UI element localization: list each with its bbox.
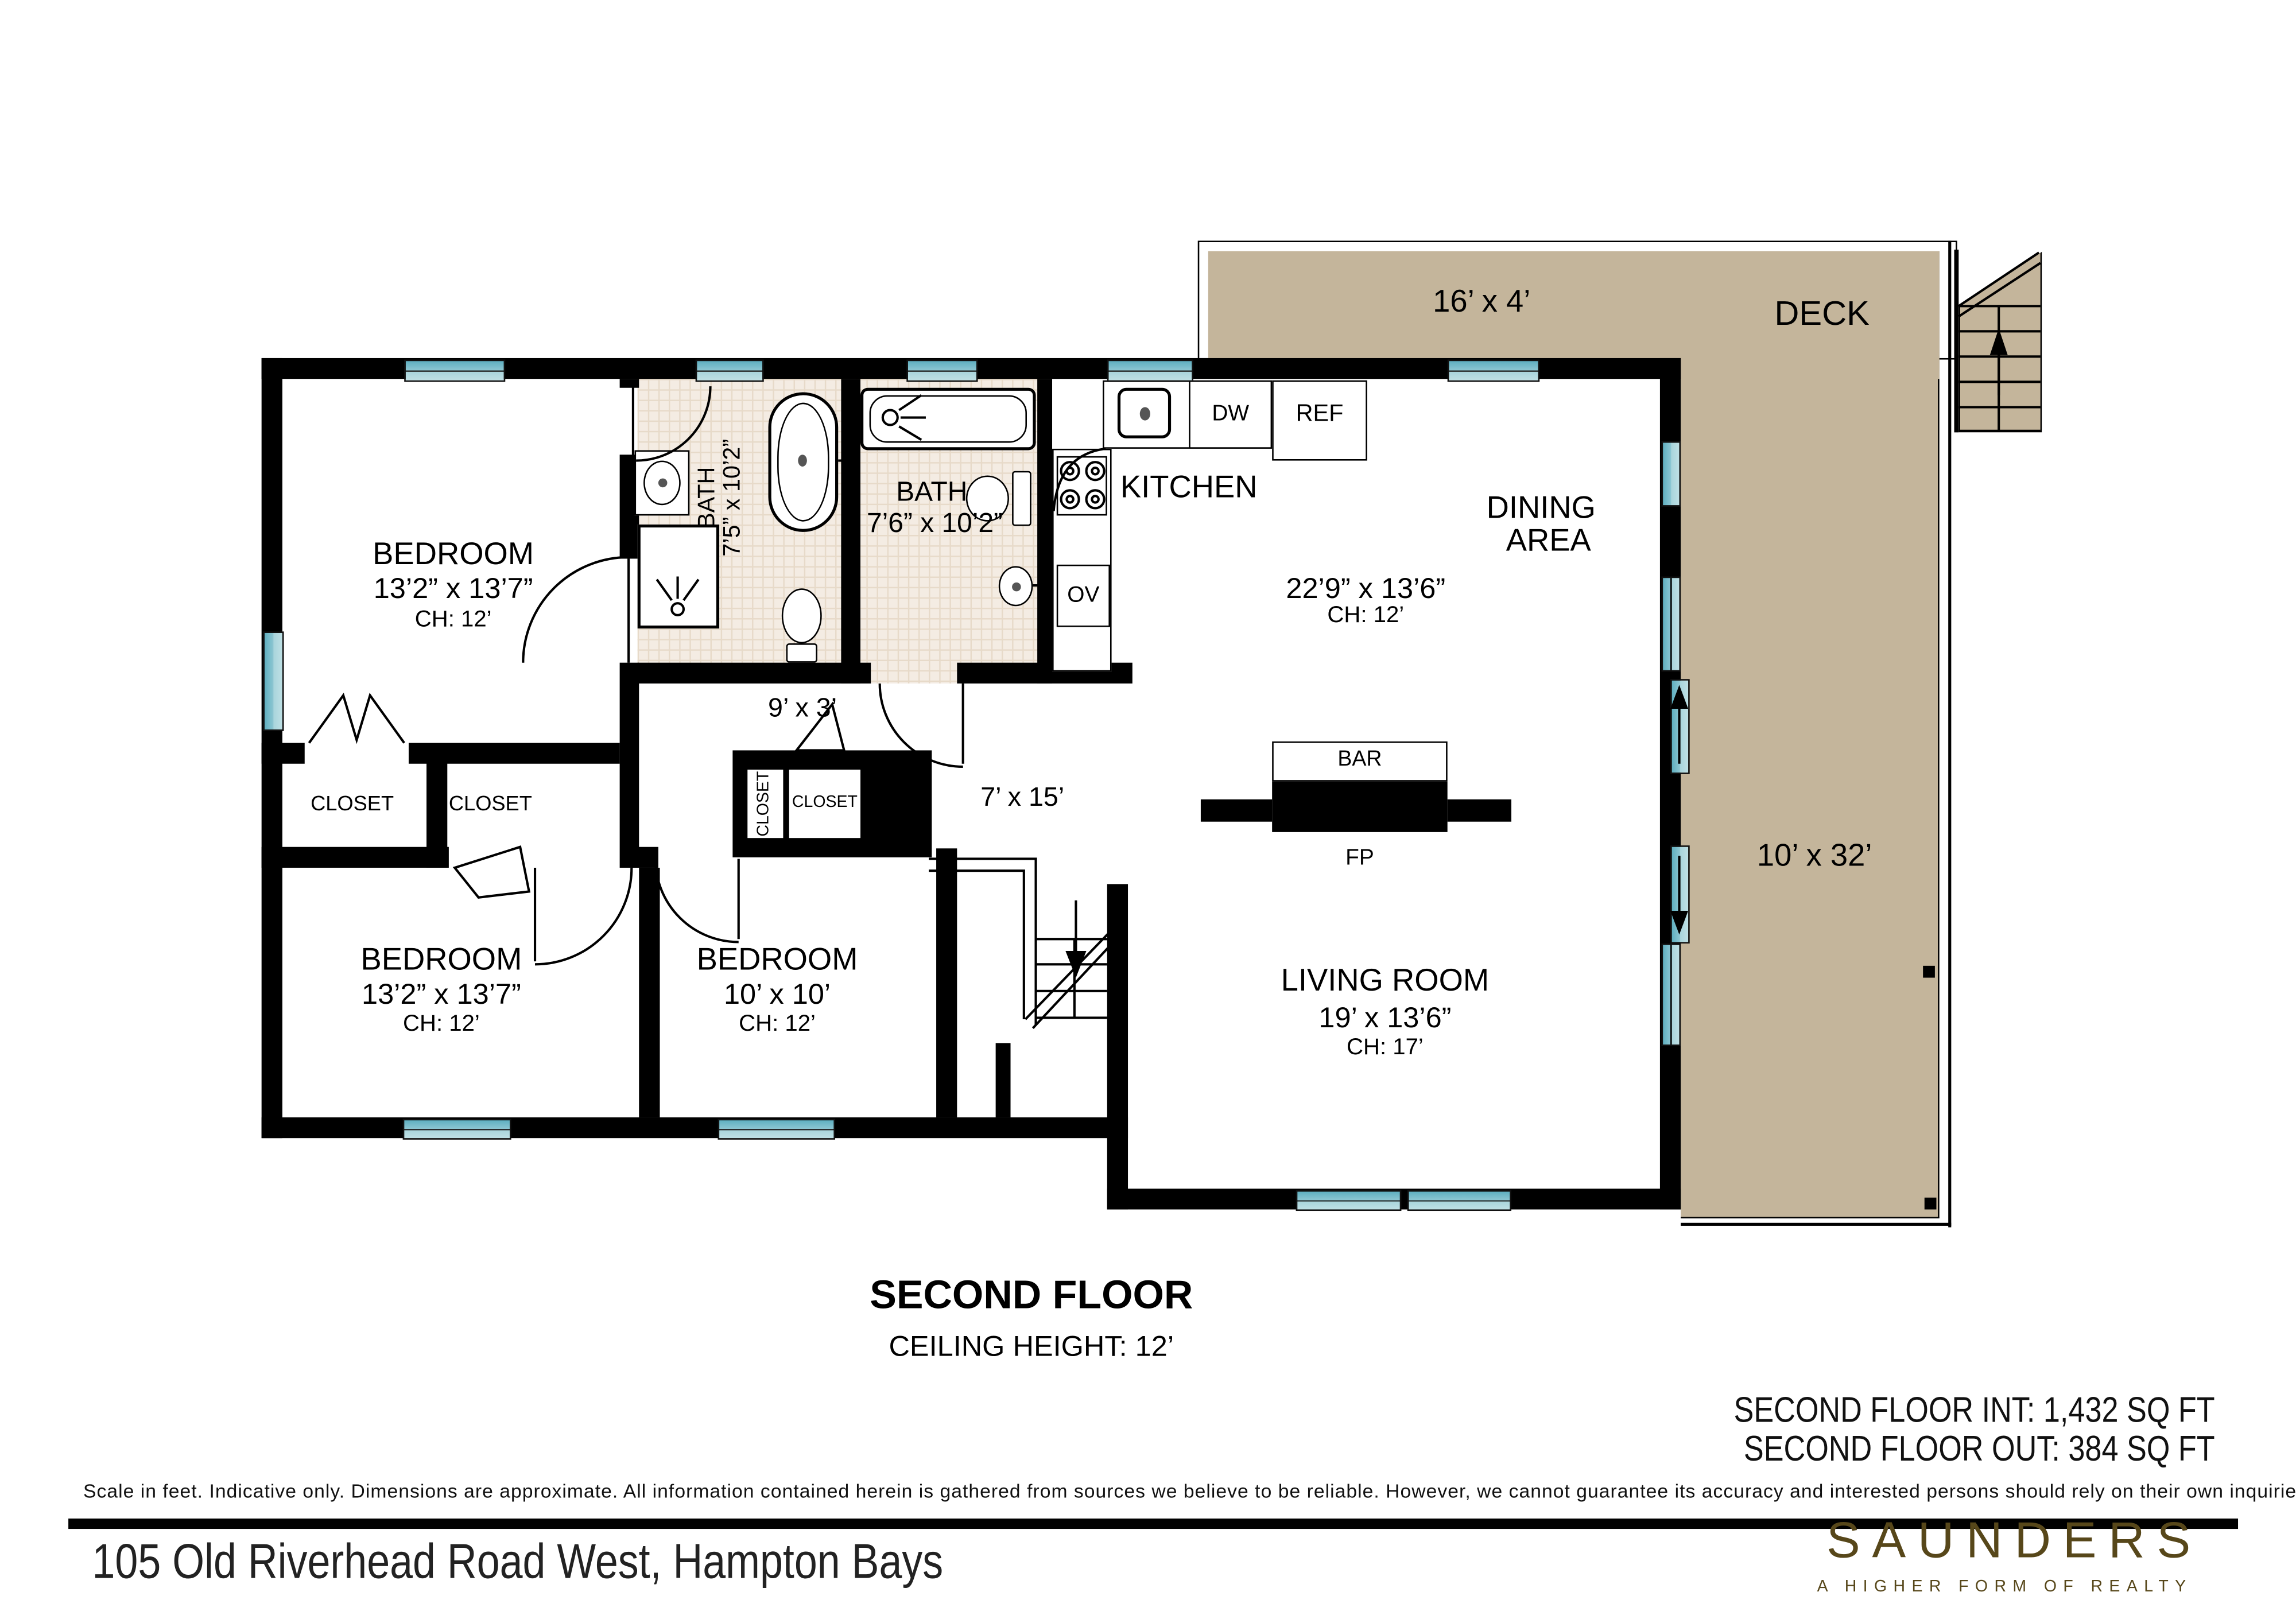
bedroom1-right-wall-a bbox=[620, 379, 639, 388]
bath1-label: BATH 7’5” x 10’2” bbox=[695, 439, 746, 557]
brand-tagline: A HIGHER FORM OF REALTY bbox=[1817, 1578, 2193, 1596]
deck-stairs bbox=[1958, 248, 2042, 432]
sliding-door bbox=[1662, 943, 1681, 1046]
stairs-down-arrow bbox=[1065, 951, 1086, 978]
stair-wall-stub bbox=[996, 1043, 1011, 1117]
bedroom1-right-wall-c bbox=[620, 663, 639, 868]
hall-top-wall-a bbox=[638, 663, 871, 684]
stair-break-line bbox=[1033, 936, 1119, 1028]
bath2-toilet-tank bbox=[1012, 471, 1031, 526]
deck-post bbox=[1923, 966, 1935, 978]
kitchen-label: KITCHEN bbox=[1120, 472, 1258, 506]
stove-box bbox=[1057, 456, 1107, 516]
plan-ceiling-height: CEILING HEIGHT: 12’ bbox=[889, 1332, 1174, 1363]
deck-side bbox=[1681, 251, 1939, 1218]
bedroom3-name: BEDROOM bbox=[697, 945, 858, 979]
dining-dims: 22’9” x 13’6” bbox=[1286, 574, 1445, 605]
deck-side-dims: 10’ x 32’ bbox=[1757, 841, 1872, 875]
bath1-toilet-tank bbox=[786, 643, 817, 663]
oven-label: OV bbox=[1067, 584, 1099, 608]
closet2-label: CLOSET bbox=[449, 793, 532, 815]
window bbox=[404, 360, 505, 382]
bath2-tub-inner bbox=[870, 395, 1027, 443]
closet4-label: CLOSET bbox=[792, 795, 858, 813]
window bbox=[1296, 1190, 1402, 1211]
bedroom1-ceiling: CH: 12’ bbox=[415, 609, 492, 634]
window bbox=[717, 1119, 835, 1140]
window bbox=[1107, 360, 1193, 382]
closet-top-wall-a bbox=[262, 743, 305, 764]
disclaimer: Scale in feet. Indicative only. Dimensio… bbox=[83, 1480, 2296, 1502]
dining-label-1: DINING bbox=[1487, 493, 1596, 527]
dishwasher-label: DW bbox=[1212, 402, 1249, 426]
sliding-door-panel-open bbox=[1670, 679, 1690, 774]
window bbox=[1662, 441, 1681, 507]
deck-label: DECK bbox=[1774, 295, 1869, 332]
bath2-name: BATH bbox=[896, 477, 967, 507]
bedroom3-ceiling: CH: 12’ bbox=[739, 1013, 816, 1038]
fireplace bbox=[1272, 782, 1448, 832]
brand-logo: SAUNDERS bbox=[1826, 1513, 2202, 1571]
bath1-sink-drain bbox=[658, 479, 668, 488]
fireplace-wing bbox=[1448, 799, 1511, 822]
bath1-name: BATH bbox=[695, 467, 720, 529]
living-left-wall bbox=[1107, 884, 1128, 1209]
window bbox=[696, 360, 764, 382]
floor-plan-page: 16’ x 4’ DECK 10’ x 32’ DW REF KITCHEN O… bbox=[0, 0, 2296, 1622]
deck-bottom-outline-line bbox=[1681, 1223, 1951, 1226]
stair-break-line bbox=[1025, 931, 1110, 1019]
bath2-dims: 7’6” x 10’2” bbox=[867, 508, 1003, 538]
closet-bottom-wall-a bbox=[262, 847, 449, 868]
closet-door-wedge bbox=[455, 847, 529, 898]
hall1-dims: 9’ x 3’ bbox=[768, 694, 837, 723]
bedroom2-name: BEDROOM bbox=[360, 945, 522, 979]
bedroom-divider-wall bbox=[639, 868, 660, 1117]
deck-stairs-edge bbox=[1954, 250, 1959, 432]
address: 105 Old Riverhead Road West, Hampton Bay… bbox=[92, 1533, 944, 1590]
dining-label-2: AREA bbox=[1506, 526, 1591, 560]
deck-outline-right-line bbox=[1948, 240, 1951, 1227]
out-sqft: SECOND FLOOR OUT: 384 SQ FT bbox=[1743, 1430, 2214, 1471]
closet3-label: CLOSET bbox=[757, 771, 774, 837]
stair-treads bbox=[1036, 939, 1107, 1018]
int-sqft: SECOND FLOOR INT: 1,432 SQ FT bbox=[1733, 1391, 2214, 1432]
bifold-door bbox=[309, 696, 405, 743]
door-arc bbox=[523, 557, 629, 663]
bedroom1-name: BEDROOM bbox=[373, 539, 534, 573]
deck-top-dims: 16’ x 4’ bbox=[1433, 286, 1530, 320]
bedroom3-right-wall bbox=[936, 848, 957, 1117]
tub-drain bbox=[798, 455, 807, 467]
exterior-wall-bedrooms-bottom bbox=[262, 1117, 1128, 1138]
bath1-dims: 7’5” x 10’2” bbox=[721, 439, 746, 557]
door-arc bbox=[535, 868, 631, 964]
deck-post bbox=[1925, 1198, 1937, 1210]
bedroom3-dims: 10’ x 10’ bbox=[724, 980, 831, 1011]
refrigerator-label: REF bbox=[1296, 402, 1344, 428]
bar-label: BAR bbox=[1337, 749, 1382, 772]
fireplace-wing bbox=[1201, 799, 1272, 822]
window bbox=[1407, 1190, 1511, 1211]
window bbox=[1448, 360, 1540, 382]
sliding-door bbox=[1662, 577, 1681, 672]
bath1-toilet-bowl bbox=[782, 588, 822, 643]
bath-divider-wall bbox=[841, 379, 860, 684]
living-ceiling: CH: 17’ bbox=[1347, 1036, 1424, 1061]
bedroom1-dims: 13’2” x 13’7” bbox=[374, 574, 533, 605]
kitchen-sink-drain bbox=[1140, 407, 1150, 420]
plan-title: SECOND FLOOR bbox=[870, 1274, 1193, 1317]
kitchen-divider-wall bbox=[1037, 379, 1052, 684]
bedroom2-dims: 13’2” x 13’7” bbox=[362, 980, 521, 1011]
window bbox=[263, 631, 284, 731]
living-name: LIVING ROOM bbox=[1281, 965, 1490, 999]
living-dims: 19’ x 13’6” bbox=[1318, 1004, 1451, 1035]
bedroom2-ceiling: CH: 12’ bbox=[403, 1013, 480, 1038]
sliding-door-panel-open bbox=[1670, 845, 1690, 943]
closet1-label: CLOSET bbox=[311, 793, 394, 815]
hall2-dims: 7’ x 15’ bbox=[980, 783, 1064, 812]
window bbox=[403, 1119, 511, 1140]
dining-ceiling: CH: 12’ bbox=[1327, 604, 1404, 629]
closet-bottom-wall-b bbox=[631, 847, 658, 868]
fireplace-label: FP bbox=[1345, 847, 1374, 871]
bath2-sink-drain bbox=[1012, 583, 1021, 592]
door-arc bbox=[656, 859, 739, 942]
window bbox=[906, 360, 978, 382]
